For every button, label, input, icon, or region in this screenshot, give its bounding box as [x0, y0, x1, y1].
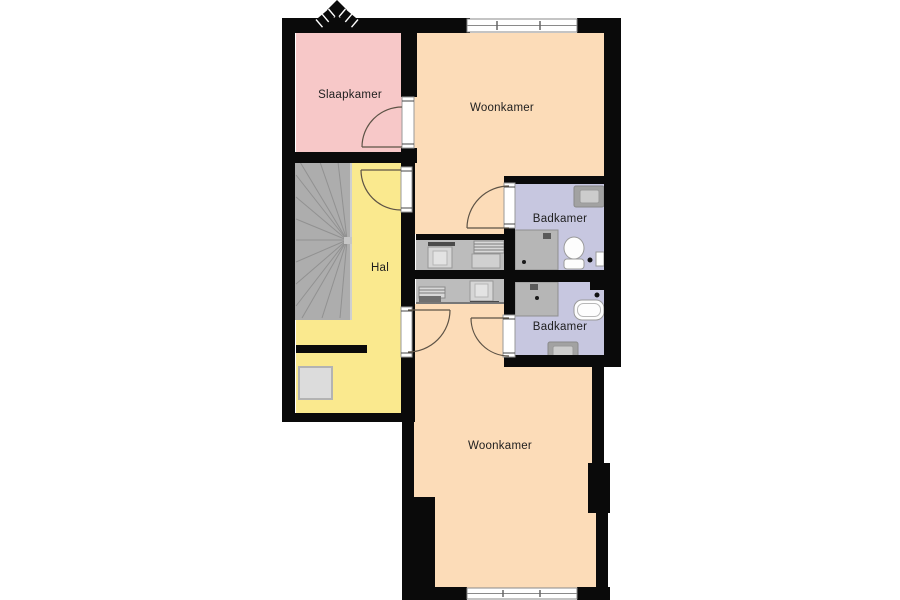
closet-bottom-edge: [416, 302, 504, 304]
wall-bottom: [402, 587, 467, 600]
washer-icon: [433, 251, 447, 265]
shower-icon: [515, 230, 558, 270]
door-frame: [401, 307, 412, 357]
floorplan-drawing: [0, 0, 900, 600]
door-frame: [503, 315, 515, 357]
radiator-icon: [596, 252, 604, 266]
room-label-woonkamer-boven: Woonkamer: [470, 102, 534, 114]
staircase: [294, 160, 352, 320]
door-frame: [401, 167, 412, 212]
wall-closet-mid: [401, 270, 515, 279]
room-label-hal: Hal: [371, 262, 389, 274]
wall-hal-right: [401, 212, 415, 307]
wall-badkamer-top: [504, 176, 621, 184]
wall-slaapkamer-right: [401, 18, 417, 97]
washer-icon: [475, 284, 488, 297]
wall-badkamer-bottom: [504, 355, 621, 367]
wall-woonkamer-onder-right: [596, 513, 608, 589]
room-label-slaapkamer: Slaapkamer: [318, 89, 382, 101]
window-bottom: [467, 588, 577, 599]
wall-hal-right: [401, 357, 415, 422]
floorplan-canvas: Slaapkamer Woonkamer Hal Badkamer Badkam…: [0, 0, 900, 600]
wall-woonkamer-onder-left: [402, 497, 435, 600]
wall-right: [604, 18, 621, 367]
door-frame: [402, 97, 414, 148]
washbasin-icon: [574, 186, 604, 207]
washer-icon: [428, 242, 455, 246]
window-top: [467, 19, 577, 32]
door-frame: [504, 183, 515, 228]
wall-woonkamer-onder-right: [592, 367, 604, 463]
wall-entrance: [296, 345, 367, 353]
room-label-woonkamer-onder: Woonkamer: [468, 440, 532, 452]
wall-woonkamer-onder-left: [402, 422, 414, 500]
stairs-newel: [344, 237, 352, 244]
shower-icon: [515, 282, 558, 316]
room-label-badkamer-boven: Badkamer: [533, 213, 587, 225]
wall-slaapkamer-right: [401, 148, 417, 163]
wall-left: [282, 18, 295, 422]
shelving-icon: [472, 241, 504, 268]
wall-closet-top: [416, 234, 504, 240]
drain-dot: [588, 258, 593, 263]
wall-badkamer-divider-step: [590, 270, 621, 290]
wall-top: [282, 18, 470, 33]
bathtub-icon: [574, 300, 604, 320]
wall-hal-bottom: [282, 413, 415, 422]
toilet-icon: [564, 237, 584, 269]
wall-right-pillar: [588, 463, 610, 513]
drain-dot: [595, 293, 600, 298]
room-label-badkamer-onder: Badkamer: [533, 321, 587, 333]
wall-slaapkamer-divider: [282, 152, 403, 163]
entrance-mat: [299, 367, 332, 399]
